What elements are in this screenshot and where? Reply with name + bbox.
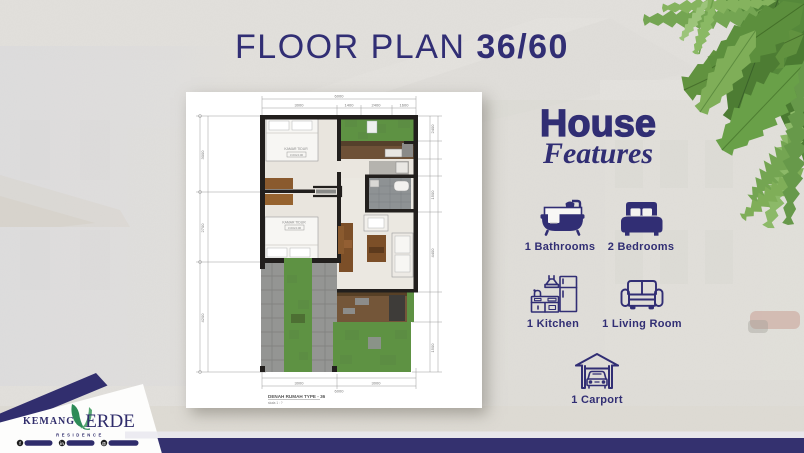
svg-text:3000: 3000 — [295, 103, 305, 108]
svg-text:2700: 2700 — [200, 223, 205, 233]
svg-text:KAMAR TIDUR: KAMAR TIDUR — [284, 147, 308, 151]
svg-text:4200: 4200 — [200, 313, 205, 323]
svg-text:2400: 2400 — [430, 124, 435, 134]
svg-text:1400: 1400 — [345, 103, 355, 108]
svg-text:3000: 3000 — [372, 381, 382, 386]
svg-text:3.00x3.00: 3.00x3.00 — [288, 226, 302, 230]
svg-text:6000: 6000 — [335, 94, 345, 99]
svg-text:1500: 1500 — [430, 343, 435, 353]
svg-text:1600: 1600 — [400, 103, 410, 108]
svg-text:KEMANG: KEMANG — [23, 416, 75, 427]
svg-text:4400: 4400 — [430, 248, 435, 258]
svg-text:3000: 3000 — [200, 150, 205, 160]
svg-text:KAMAR TIDUR: KAMAR TIDUR — [282, 221, 306, 225]
svg-text:ERDE: ERDE — [85, 411, 135, 432]
svg-text:2400: 2400 — [372, 103, 382, 108]
svg-text:1500: 1500 — [430, 190, 435, 200]
svg-text:6000: 6000 — [335, 389, 345, 394]
svg-text:3.00x3.00: 3.00x3.00 — [290, 153, 304, 157]
svg-text:3000: 3000 — [295, 381, 305, 386]
svg-text:skala 1 : ?: skala 1 : ? — [268, 401, 283, 405]
svg-text:DENAH RUMAH TYPE - 36: DENAH RUMAH TYPE - 36 — [268, 394, 326, 399]
